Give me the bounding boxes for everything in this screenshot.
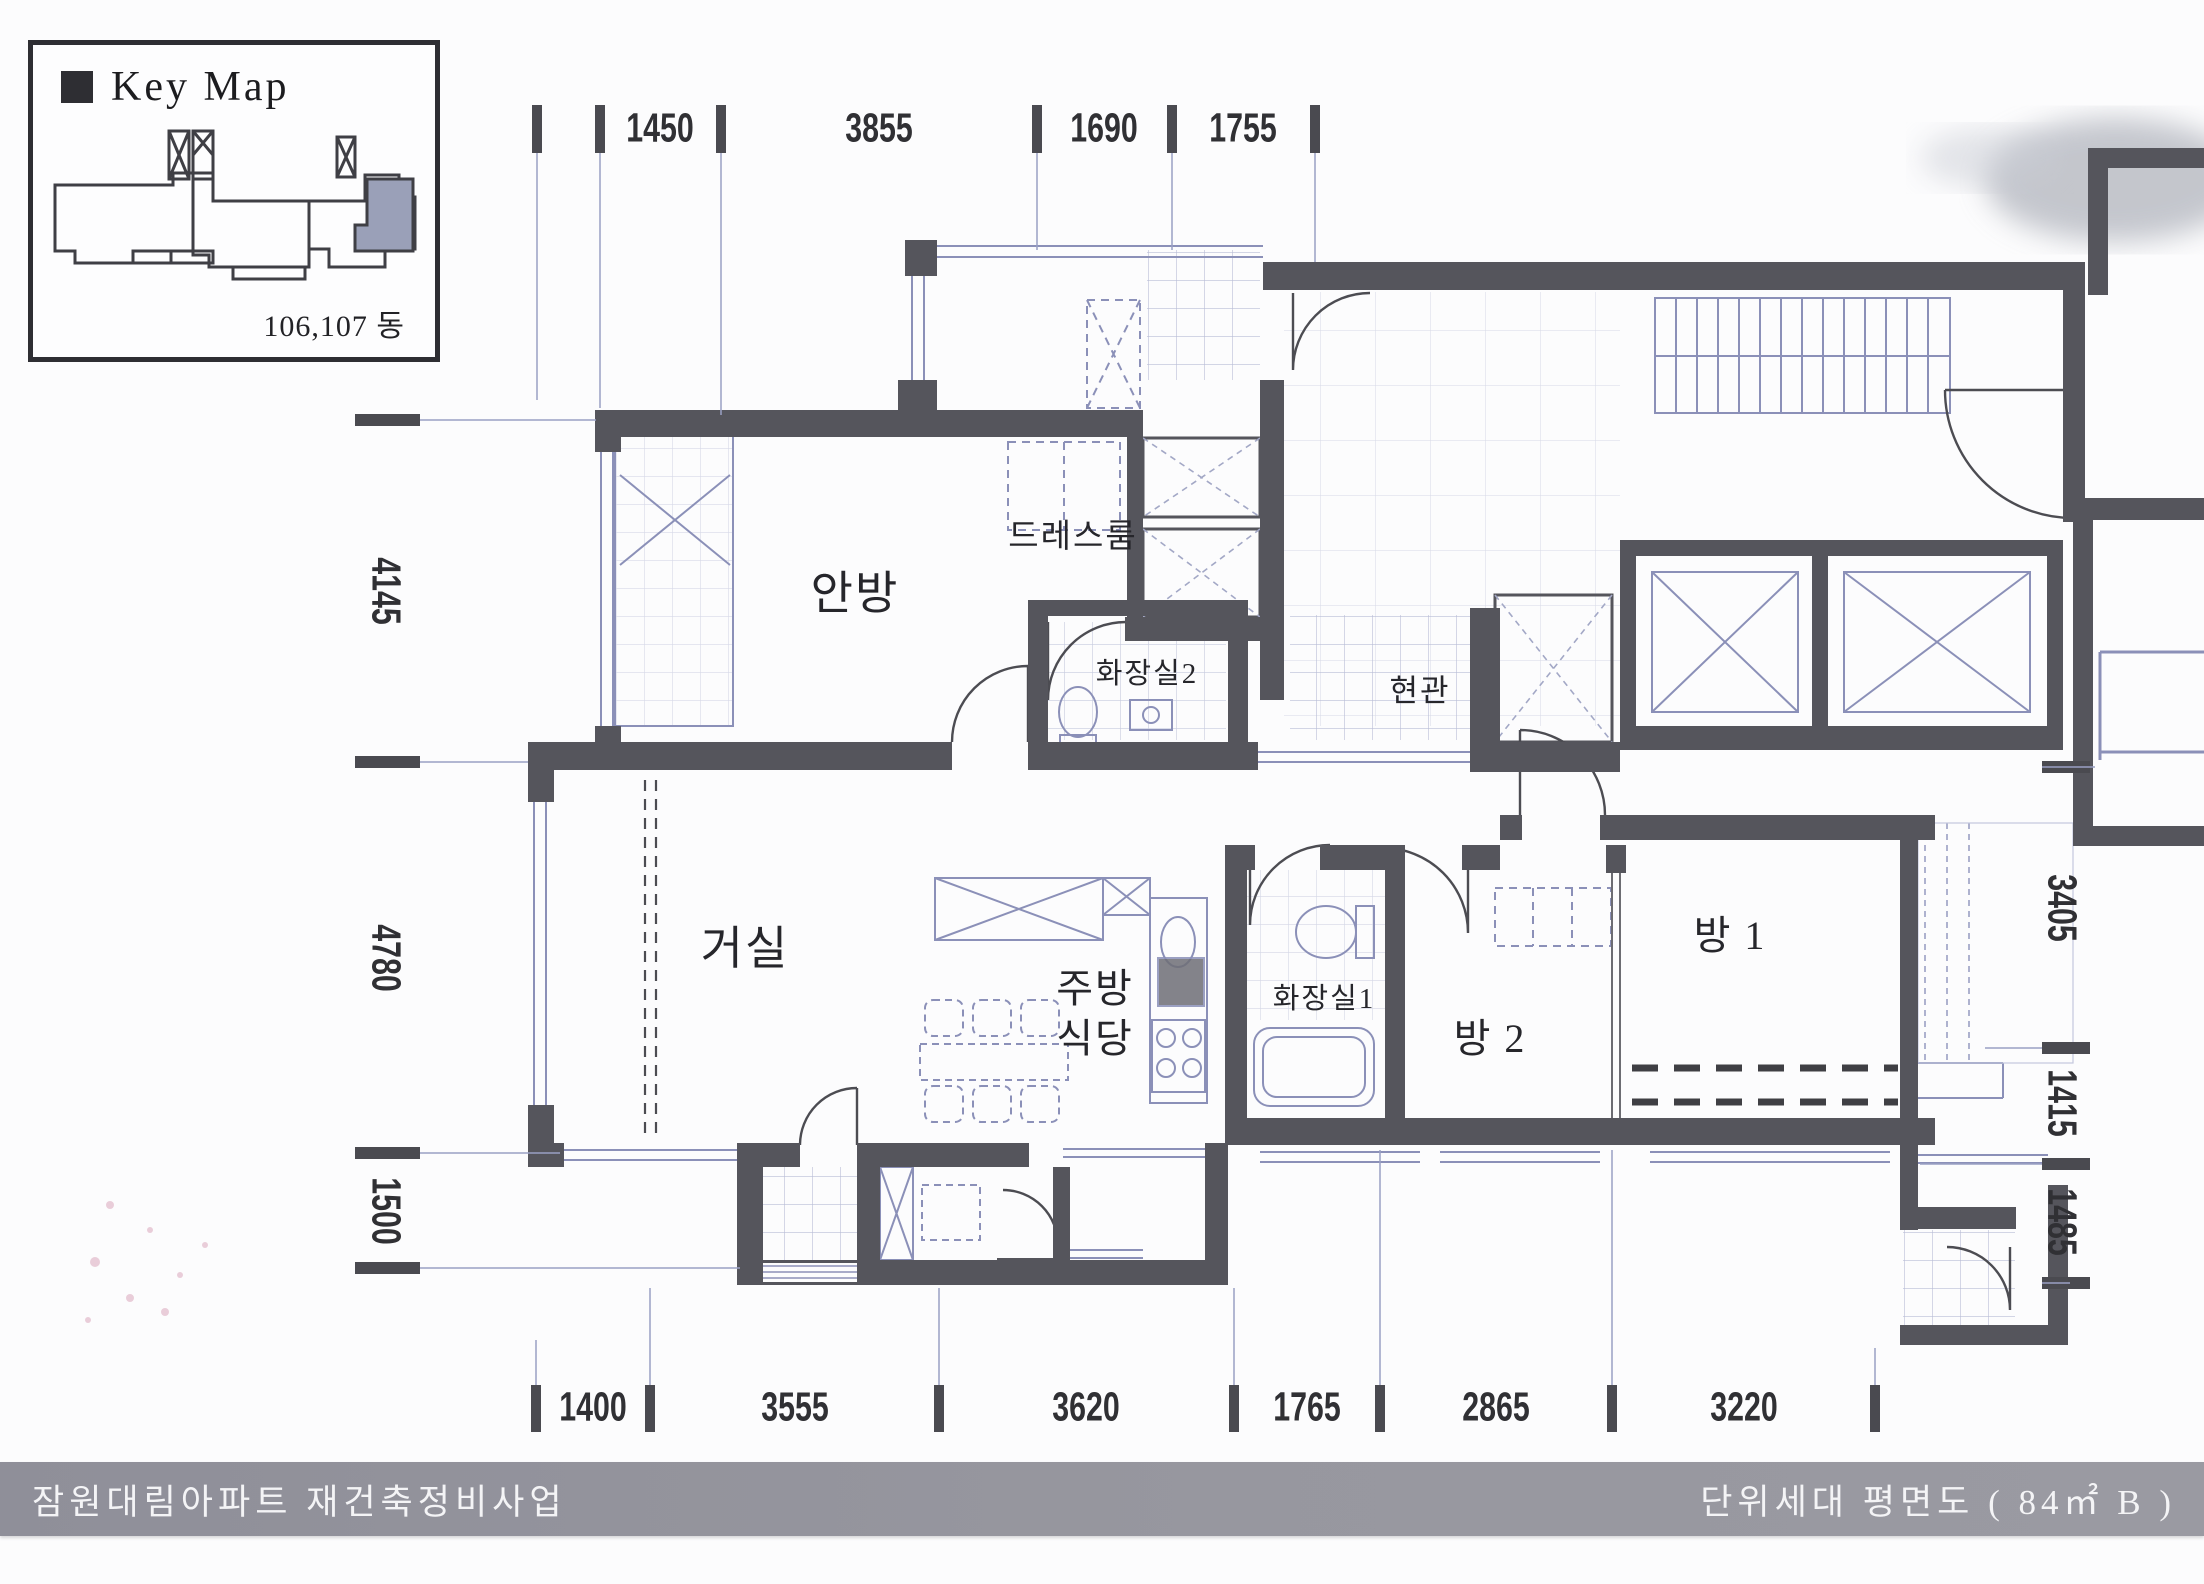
room-label-dining: 식당: [1056, 1006, 1134, 1064]
dim-right-1: 1415: [2039, 1069, 2086, 1137]
room-label-room1: 방 1: [1694, 903, 1767, 961]
room-label-bathroom1: 화장실1: [1273, 975, 1376, 1017]
dim-left-2: 1500: [363, 1177, 410, 1245]
dim-left-1: 4780: [363, 924, 410, 992]
title-bar: 잠원대림아파트 재건축정비사업 단위세대 평면도 ( 84㎡ B ): [0, 1462, 2204, 1536]
room-label-entrance: 현관: [1389, 666, 1450, 711]
room-label-living-room: 거실: [701, 912, 790, 978]
dim-right-2: 1485: [2039, 1188, 2086, 1256]
dim-top-1: 3855: [845, 105, 913, 152]
dim-bottom-5: 3220: [1710, 1384, 1778, 1431]
key-map-building-label: 106,107 동: [263, 301, 405, 345]
dim-bottom-4: 2865: [1462, 1384, 1530, 1431]
key-map-panel: Key Map 106,107 동: [28, 40, 440, 362]
dim-bottom-2: 3620: [1052, 1384, 1120, 1431]
drawing-title: 단위세대 평면도 ( 84㎡ B ): [1700, 1474, 2176, 1525]
dim-bottom-0: 1400: [559, 1384, 627, 1431]
key-map-marker-icon: [61, 71, 93, 103]
scan-speckles: [85, 1201, 208, 1323]
room-label-bathroom2: 화장실2: [1096, 650, 1199, 692]
key-map-title: Key Map: [61, 63, 289, 111]
key-map-drawing: [37, 117, 437, 317]
key-map-title-text: Key Map: [111, 63, 289, 111]
dim-left-0: 4145: [363, 557, 410, 625]
living-room-dashed-line: [645, 780, 656, 1140]
room-label-master-bedroom: 안방: [811, 557, 900, 623]
project-title: 잠원대림아파트 재건축정비사업: [32, 1474, 567, 1525]
dim-bottom-1: 3555: [761, 1384, 829, 1431]
room1-dashed-lines: [1632, 1068, 1898, 1102]
dim-bottom-3: 1765: [1273, 1384, 1341, 1431]
dim-top-2: 1690: [1070, 105, 1138, 152]
room-label-room2: 방 2: [1454, 1006, 1527, 1064]
room-label-dress-room: 드레스룸: [1008, 509, 1137, 557]
dim-right-0: 3405: [2039, 874, 2086, 942]
floor-plan-sheet: Key Map 106,107 동 1450 3855 1690 1755 41…: [0, 0, 2204, 1584]
dim-top-3: 1755: [1209, 105, 1277, 152]
dim-top-0: 1450: [626, 105, 694, 152]
